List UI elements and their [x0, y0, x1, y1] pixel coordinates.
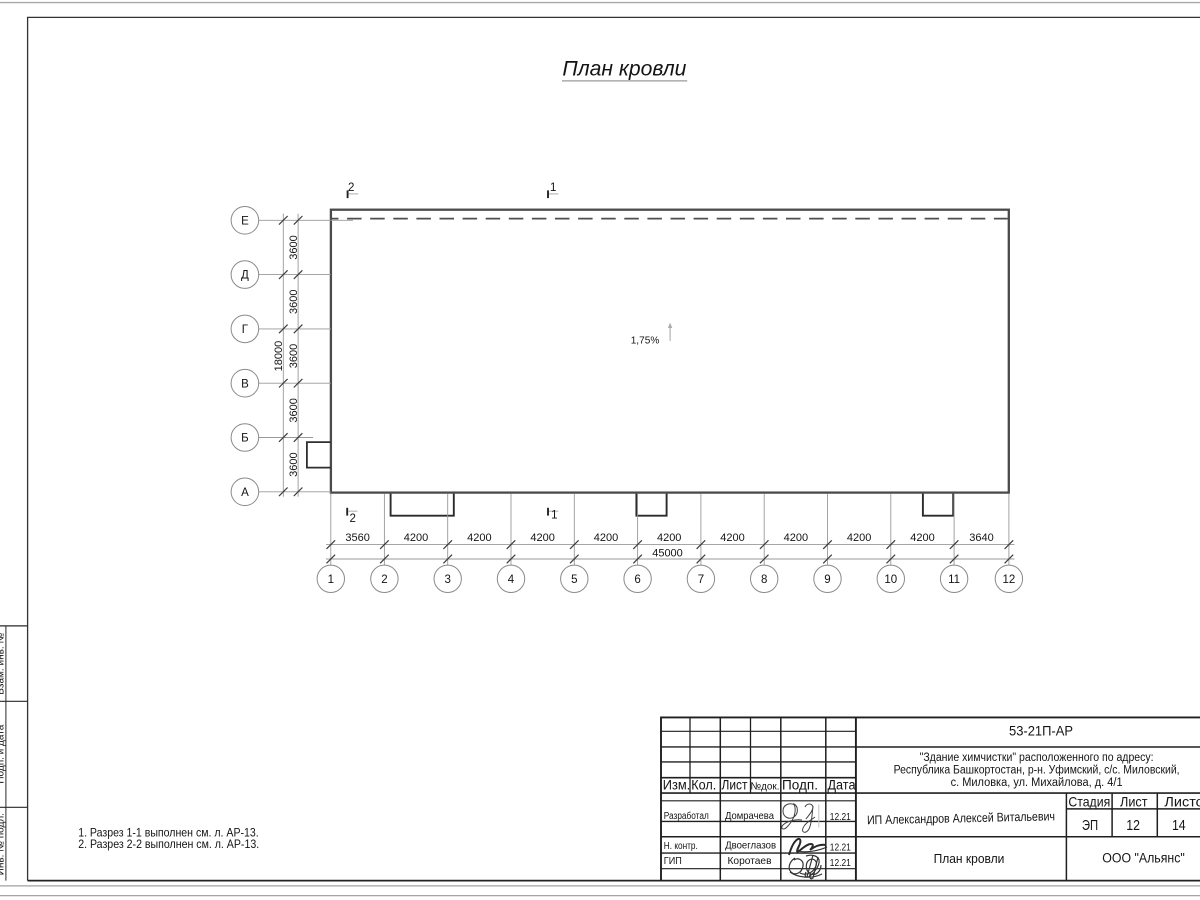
svg-text:Домрачева: Домрачева	[725, 810, 774, 822]
svg-text:2: 2	[349, 513, 355, 525]
svg-text:Взам. инв. №: Взам. инв. №	[0, 633, 6, 695]
svg-text:3600: 3600	[288, 235, 300, 259]
svg-text:3600: 3600	[288, 290, 300, 314]
svg-text:Лист: Лист	[1120, 794, 1148, 810]
svg-text:А: А	[241, 487, 249, 499]
svg-text:4200: 4200	[910, 532, 934, 544]
svg-text:6: 6	[634, 574, 640, 586]
svg-text:ЭП: ЭП	[1082, 818, 1098, 834]
svg-text:Разработал: Разработал	[664, 810, 709, 822]
svg-text:1: 1	[551, 510, 557, 522]
svg-text:4200: 4200	[467, 532, 491, 544]
svg-text:14: 14	[1172, 818, 1186, 834]
svg-text:4200: 4200	[404, 532, 428, 544]
svg-text:5: 5	[571, 574, 577, 586]
svg-text:10: 10	[884, 574, 897, 586]
svg-text:с. Миловка, ул. Михайлова, д.: с. Миловка, ул. Михайлова, д. 4/1	[951, 777, 1123, 789]
svg-text:Г: Г	[242, 324, 249, 336]
svg-text:12.21: 12.21	[830, 812, 851, 823]
svg-text:7: 7	[698, 574, 704, 586]
svg-text:12.21: 12.21	[830, 842, 851, 853]
svg-text:2. Разрез 2-2 выполнен см. л.: 2. Разрез 2-2 выполнен см. л. АР-13.	[78, 837, 259, 851]
svg-text:11: 11	[948, 574, 960, 586]
svg-text:Республика Башкортостан, р-н.: Республика Башкортостан, р-н. Уфимский, …	[894, 764, 1180, 776]
svg-text:В: В	[241, 378, 249, 390]
svg-text:Двоеглазов: Двоеглазов	[725, 840, 776, 852]
svg-text:План кровли: План кровли	[562, 57, 686, 80]
svg-text:Б: Б	[241, 433, 249, 445]
svg-text:3600: 3600	[288, 398, 300, 422]
svg-text:3560: 3560	[345, 532, 369, 544]
svg-text:Е: Е	[241, 215, 249, 227]
svg-text:Д: Д	[241, 270, 249, 282]
svg-text:Коротаев: Коротаев	[728, 855, 772, 867]
svg-text:ГИП: ГИП	[664, 856, 682, 867]
svg-text:4200: 4200	[657, 532, 681, 544]
svg-text:8: 8	[761, 574, 767, 586]
svg-text:Подп.: Подп.	[782, 778, 818, 793]
svg-text:53-21П-АР: 53-21П-АР	[1009, 723, 1073, 739]
svg-text:4200: 4200	[594, 532, 618, 544]
svg-text:План кровли: План кровли	[934, 852, 1005, 866]
svg-text:Лист: Лист	[722, 778, 748, 793]
svg-text:Инв. № подл.: Инв. № подл.	[0, 813, 6, 875]
svg-text:2: 2	[381, 574, 387, 586]
svg-text:12: 12	[1126, 818, 1140, 834]
svg-text:4200: 4200	[784, 532, 808, 544]
svg-text:№док.: №док.	[751, 781, 780, 793]
svg-text:18000: 18000	[273, 341, 285, 372]
svg-text:45000: 45000	[652, 548, 683, 560]
svg-text:3640: 3640	[969, 532, 993, 544]
svg-text:3: 3	[444, 574, 450, 586]
svg-text:3600: 3600	[288, 344, 300, 368]
svg-text:Подп. и дата: Подп. и дата	[0, 724, 6, 783]
svg-text:"Здание химчистки" расположенн: "Здание химчистки" расположенного по адр…	[920, 752, 1154, 764]
svg-text:1: 1	[328, 574, 334, 586]
svg-text:12.21: 12.21	[830, 858, 851, 869]
svg-text:4200: 4200	[530, 532, 554, 544]
svg-text:4: 4	[508, 574, 515, 586]
svg-text:2: 2	[348, 182, 354, 194]
svg-text:Дата: Дата	[828, 778, 856, 793]
svg-text:4200: 4200	[720, 532, 744, 544]
svg-text:3600: 3600	[288, 452, 300, 476]
svg-text:1,75%: 1,75%	[631, 334, 660, 346]
svg-text:Изм.: Изм.	[663, 778, 691, 793]
svg-text:ООО "Альянс": ООО "Альянс"	[1102, 851, 1185, 866]
svg-text:Кол.: Кол.	[691, 778, 716, 793]
svg-text:Стадия: Стадия	[1068, 794, 1110, 810]
svg-text:12: 12	[1003, 574, 1016, 586]
svg-text:1: 1	[550, 182, 556, 194]
svg-text:9: 9	[824, 574, 830, 586]
svg-text:Листов: Листов	[1164, 794, 1200, 810]
svg-text:Н. контр.: Н. контр.	[664, 841, 698, 852]
svg-text:4200: 4200	[847, 532, 871, 544]
